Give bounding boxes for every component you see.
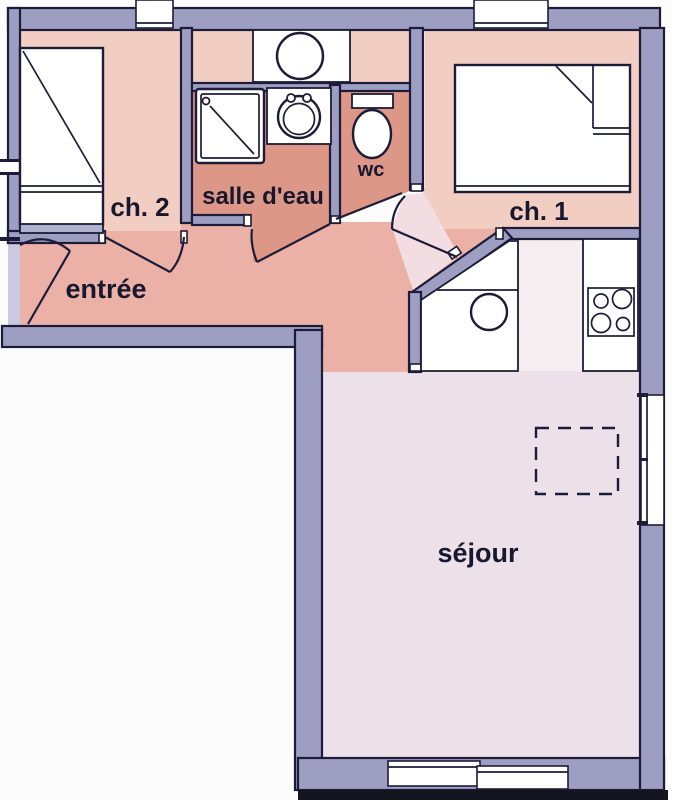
window-bottom-right [477, 766, 568, 789]
jamb-wc-right [411, 184, 422, 191]
room-label-sejour: séjour [437, 538, 519, 568]
wall-ch2-sde [181, 28, 192, 223]
room-label-ch1: ch. 1 [509, 196, 568, 226]
shower [196, 89, 264, 163]
jamb-ch1 [496, 228, 503, 239]
wall-ch1-bottom [503, 228, 640, 239]
toilet [352, 94, 393, 158]
room-label-wc: wc [357, 159, 385, 181]
shower-tray [196, 89, 264, 163]
bed2-headboard [20, 224, 103, 233]
basin-tap-right [303, 94, 311, 102]
wall-top [8, 8, 660, 30]
round-appliance-counter [253, 30, 350, 82]
single-bed [20, 48, 103, 233]
window-right-tick-bottom [637, 521, 648, 525]
scan-shadow [298, 790, 668, 800]
window-bottom-left [388, 761, 480, 786]
wall-left [8, 8, 20, 243]
basin-tap-left [287, 94, 295, 102]
room-label-ch2: ch. 2 [110, 192, 169, 222]
kitchen-sink [471, 294, 507, 330]
washbasin [267, 88, 331, 144]
wall-wc-ch1 [410, 28, 423, 190]
notch-line-bottom [0, 172, 20, 175]
room-label-salle-deau: salle d'eau [202, 183, 324, 210]
toilet-cistern [352, 94, 393, 108]
bed2-frame [20, 48, 103, 225]
party-wall-light [8, 243, 20, 327]
round-appliance [277, 33, 323, 79]
jamb-sde [244, 215, 251, 226]
toilet-bowl [353, 110, 391, 158]
window-right-tick-mid [641, 458, 648, 461]
double-bed [455, 65, 630, 192]
floor-plan-page: ch. 2 salle d'eau wc ch. 1 entrée séjour [0, 0, 673, 800]
wall-sde-bottom [192, 215, 250, 225]
party-wall-tick [0, 237, 20, 241]
floor-plan: ch. 2 salle d'eau wc ch. 1 entrée séjour [0, 0, 673, 800]
jamb-kitchen-wall-cap [410, 364, 421, 371]
notch-line-top [0, 159, 20, 162]
floor-entree-tongue [322, 330, 409, 372]
room-label-entree: entrée [65, 274, 146, 304]
wall-entree-south [2, 326, 322, 347]
wall-junction-notch [4, 161, 20, 173]
wall-kitchen-vertical [409, 292, 421, 372]
wall-sejour-left [295, 330, 322, 790]
window-right-tick-top [637, 393, 648, 397]
